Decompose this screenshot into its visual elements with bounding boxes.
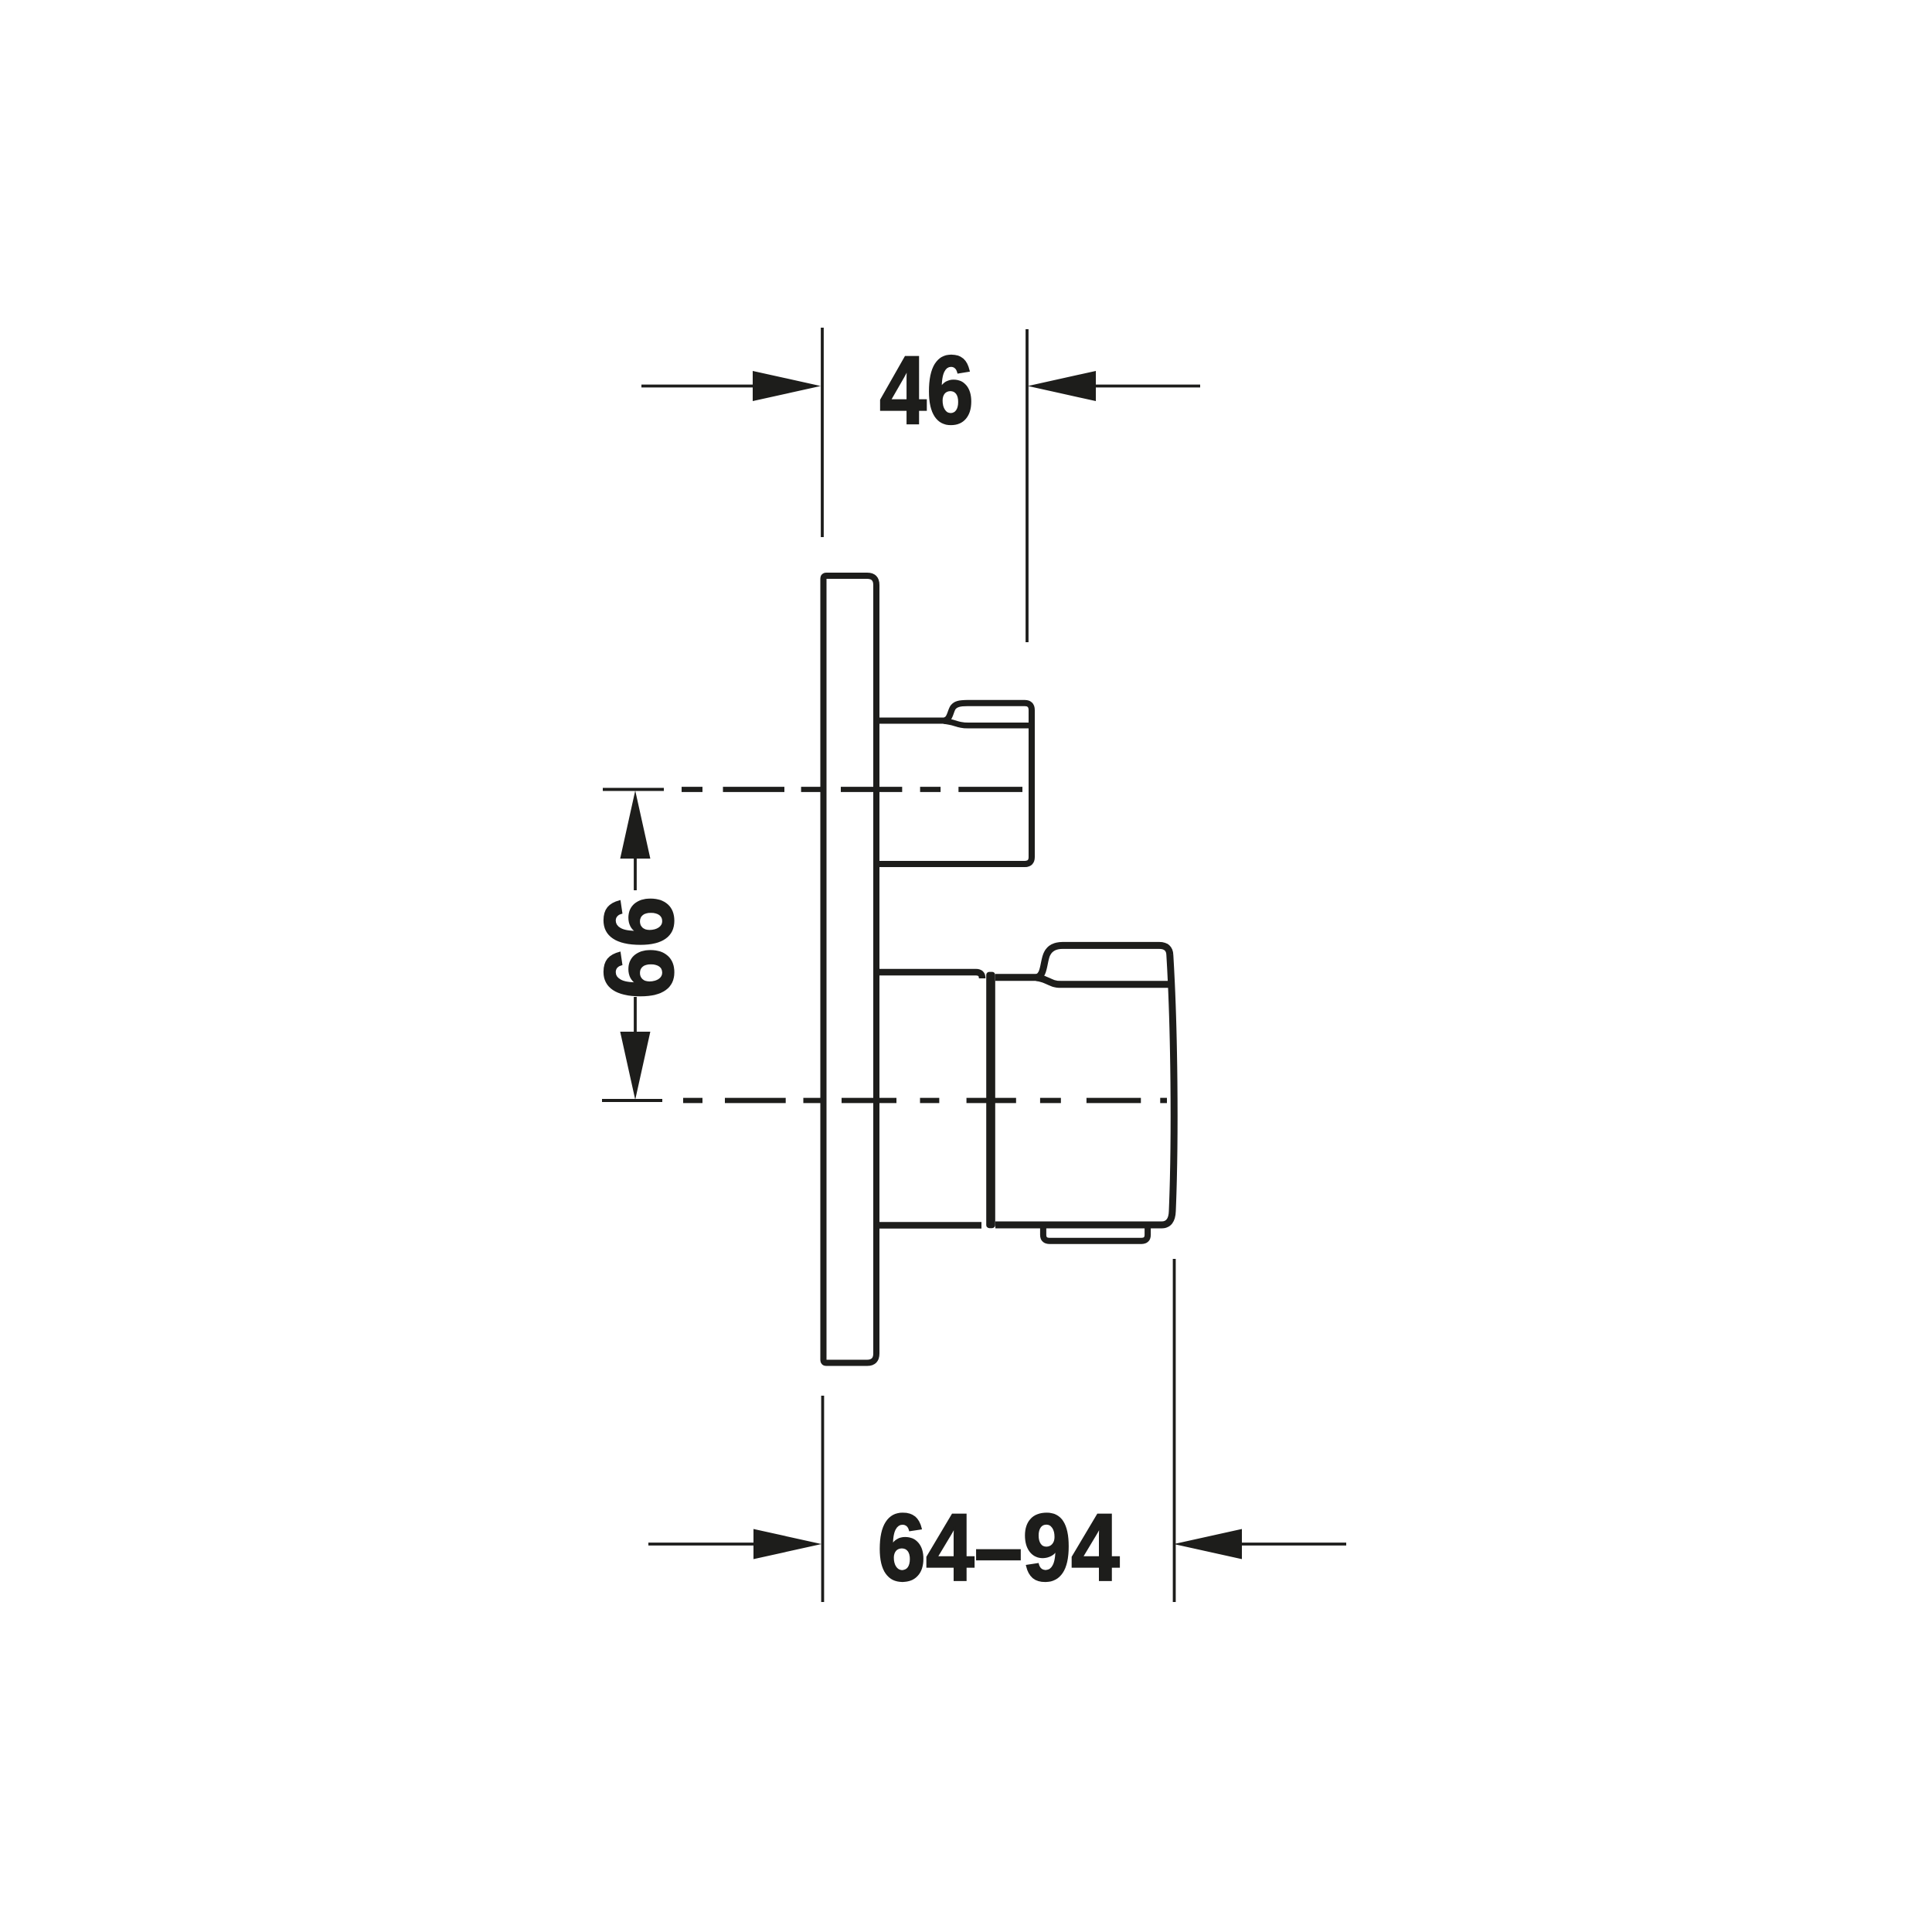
svg-text:64–94: 64–94 xyxy=(877,1495,1120,1601)
svg-text:66: 66 xyxy=(586,896,694,998)
svg-text:46: 46 xyxy=(879,335,974,444)
